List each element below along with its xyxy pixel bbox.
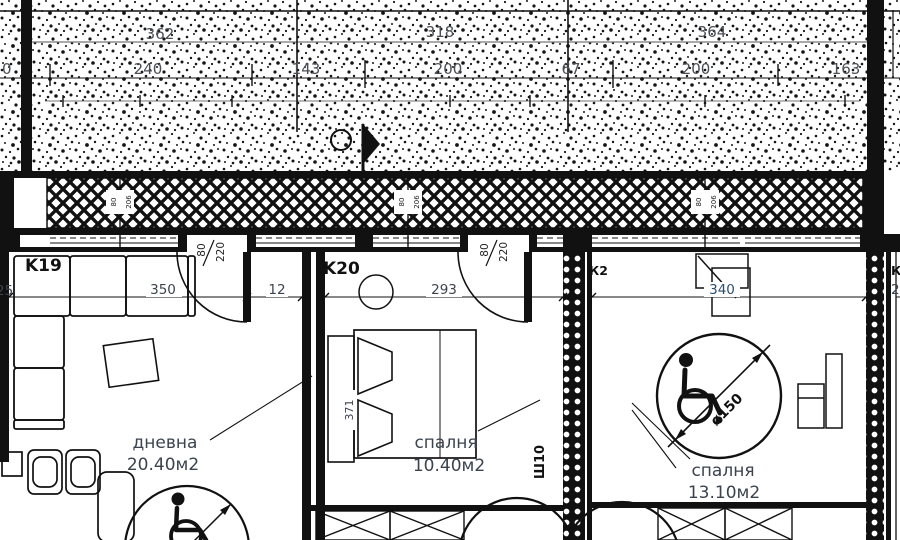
- crosshatch-wall-section: [47, 178, 863, 228]
- dim-143: 143: [292, 60, 321, 78]
- floor-plan-drawing: 362 318 364 0 240 143 200 67 200 163: [0, 0, 900, 540]
- dim-340: 340: [709, 282, 735, 298]
- dim-318: 318: [426, 23, 455, 41]
- nightstand: [798, 354, 842, 428]
- dim-364: 364: [698, 23, 727, 41]
- dim-163: 163: [832, 60, 861, 78]
- dim-240: 240: [134, 60, 163, 78]
- wardrobe: [328, 336, 392, 462]
- micro-label-206: 206: [413, 195, 421, 209]
- door-height-label: 220: [498, 242, 510, 262]
- turning-circle-bed2: ø150: [657, 334, 781, 458]
- dim-200-a: 200: [434, 60, 463, 78]
- coffee-table: [103, 339, 158, 388]
- micro-label-80: 80: [695, 198, 703, 207]
- room-bed1: K20 293 371 Ш10 спалня 10.40м2: [321, 259, 575, 540]
- room-area-bed2: 13.10м2: [688, 483, 760, 503]
- party-wall-1: [563, 252, 585, 540]
- doors: 80 220 80 220: [177, 240, 532, 322]
- plan-walls: [0, 234, 900, 540]
- door-height-label: 220: [215, 242, 227, 262]
- unit-label-k2: К2: [589, 263, 608, 278]
- armchairs: [2, 450, 134, 540]
- micro-label-206: 206: [710, 195, 718, 209]
- floor-plan-canvas: 362 318 364 0 240 143 200 67 200 163: [0, 0, 900, 540]
- dim-120: 12: [268, 282, 285, 298]
- micro-label-80: 80: [398, 198, 406, 207]
- bottom-window-x-boxes: [316, 508, 792, 540]
- micro-label-206: 206: [125, 195, 133, 209]
- wall-end-bar-right: [867, 0, 884, 171]
- dim-67: 67: [561, 60, 580, 78]
- dim-left-25: 25: [0, 283, 13, 299]
- hatch-band: 80 206 80 206 80 206: [0, 171, 884, 252]
- door-bed1: 80 220: [458, 240, 532, 322]
- dim-right-25: 25: [891, 282, 900, 298]
- dim-293: 293: [431, 282, 457, 298]
- room-area-living: 20.40м2: [127, 455, 199, 475]
- wheelchair-icon: [171, 493, 206, 540]
- turning-circle-bed1: [459, 498, 575, 540]
- door-width-label: 80: [196, 243, 208, 256]
- room-area-bed1: 10.40м2: [413, 456, 485, 476]
- dim-362: 362: [146, 25, 175, 43]
- wall-end-bar-left: [21, 0, 32, 171]
- micro-label-80: 80: [110, 198, 118, 207]
- interior-wall-b: [316, 252, 325, 540]
- room-name-living: дневна: [133, 433, 198, 453]
- room-name-bed2: спалня: [691, 461, 754, 481]
- shaft-label-sh10: Ш10: [533, 445, 548, 479]
- dim-cut-left: 0: [2, 60, 12, 78]
- dim-371: 371: [343, 400, 356, 421]
- room-name-bed1: спалня: [414, 433, 477, 453]
- dim-350: 350: [150, 282, 176, 298]
- room-bed2: К2 340 ø150: [564, 254, 870, 540]
- unit-label-k20: K20: [323, 259, 360, 279]
- turning-circle-living: [125, 486, 249, 540]
- dim-200-b: 200: [682, 60, 711, 78]
- unit-label-k19: K19: [25, 256, 62, 276]
- unit-label-right: К2: [891, 263, 900, 278]
- door-width-label: 80: [479, 243, 491, 256]
- room-living: K19 350 12 25: [0, 256, 312, 540]
- grid-marker-circle: [359, 275, 393, 309]
